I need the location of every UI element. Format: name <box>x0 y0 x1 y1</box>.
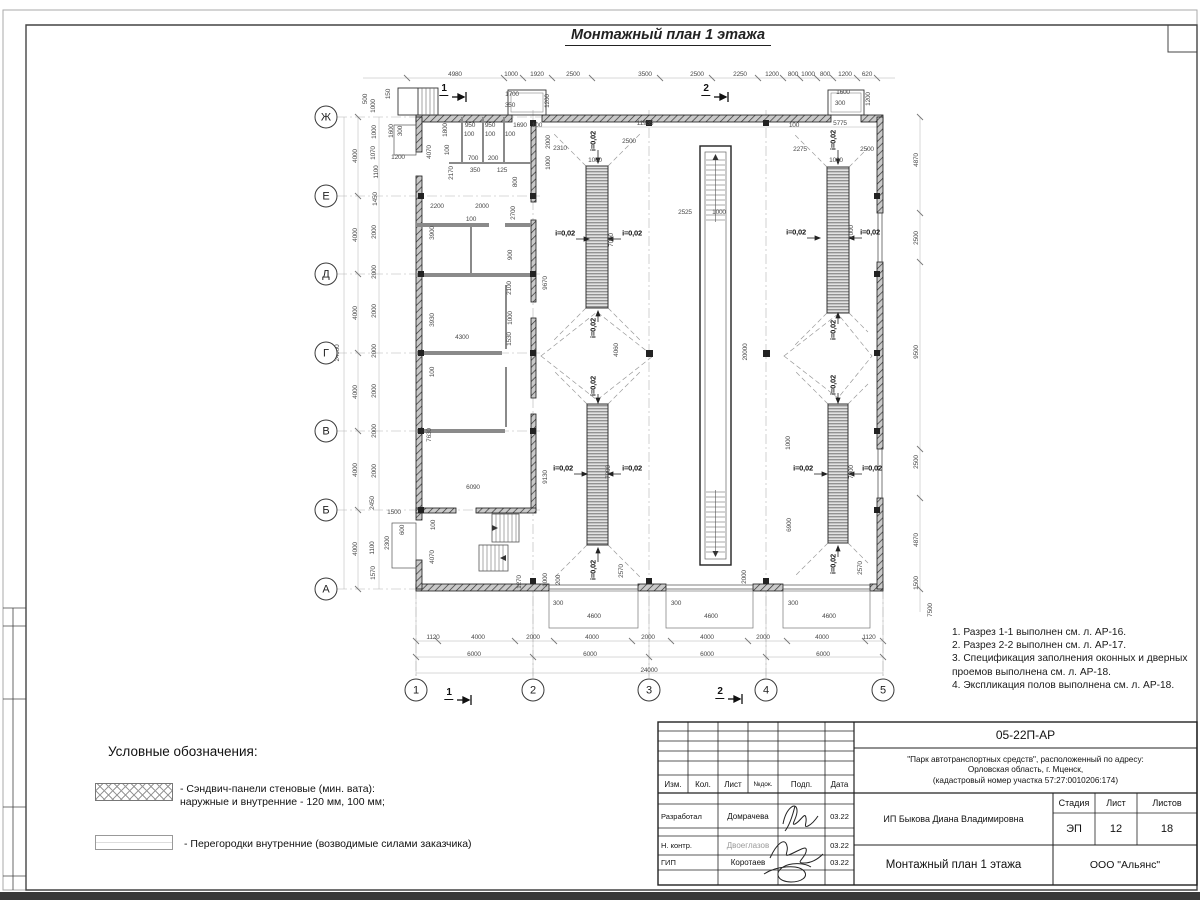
dim-label: 2000 <box>475 204 489 211</box>
dim-label: 1200 <box>765 72 779 79</box>
dim-label: 2000 <box>372 384 379 398</box>
stage-label: Стадия <box>1053 793 1095 813</box>
axis-bubble-row: Ж <box>315 106 338 129</box>
dim-label: 4000 <box>353 463 360 477</box>
slope-label: i=0,02 <box>862 464 882 472</box>
dim-label: 4000 <box>353 149 360 163</box>
note-item: 2. Разрез 2-2 выполнен см. л. АР-17. <box>952 639 1200 652</box>
slope-label: i=0,02 <box>860 228 880 236</box>
role-ncontrol: Н. контр. <box>661 836 717 855</box>
organization: ООО "Альянс" <box>1053 845 1197 885</box>
dim-label: 2450 <box>370 496 377 510</box>
dim-label: 7000 <box>849 465 856 479</box>
dim-label: 7000 <box>606 465 613 479</box>
dim-label: 4870 <box>914 533 921 547</box>
dim-label: 2500 <box>914 231 921 245</box>
dim-label: 7630 <box>427 428 434 442</box>
dim-label: 4000 <box>815 635 829 642</box>
dim-label: 2000 <box>372 304 379 318</box>
dim-label: 9130 <box>543 470 550 484</box>
dim-label: 6000 <box>467 652 481 659</box>
doc-number: 05-22П-АР <box>854 722 1197 748</box>
dim-label: 800 <box>788 72 798 79</box>
dim-label: 100 <box>505 132 515 139</box>
slope-label: i=0,02 <box>622 464 642 472</box>
dim-label: 1200 <box>866 92 873 106</box>
dim-label: 11935 <box>637 121 654 128</box>
slope-label: i=0,02 <box>589 560 597 580</box>
date-gip: 03.22 <box>825 855 854 870</box>
dim-label: 6000 <box>816 652 830 659</box>
note-item: 1. Разрез 1-1 выполнен см. л. АР-16. <box>952 626 1200 639</box>
dim-label: 4870 <box>914 153 921 167</box>
dim-label: 1200 <box>545 94 552 108</box>
slope-label: i=0,02 <box>829 320 837 340</box>
axis-bubble-row: Д <box>315 263 338 286</box>
slope-label: i=0,02 <box>829 554 837 574</box>
col-ndok: №док. <box>748 775 778 793</box>
dim-label: 2500 <box>860 147 874 154</box>
dim-label: 4000 <box>471 635 485 642</box>
dim-label: 1600 <box>836 90 850 97</box>
dim-label: 300 <box>788 601 798 608</box>
dim-label: 1270 <box>517 575 524 589</box>
legend-item-partition: - Перегородки внутренние (возводимые сил… <box>184 838 472 851</box>
dim-label: 700 <box>468 156 478 163</box>
dim-label: 4600 <box>704 614 718 621</box>
sheets-label: Листов <box>1137 793 1197 813</box>
dim-label: 1000 <box>829 158 843 165</box>
dim-label: 600 <box>400 525 407 535</box>
slope-label: i=0,02 <box>589 376 597 396</box>
dim-label: 7000 <box>609 233 616 247</box>
dim-label: 200 <box>556 575 563 585</box>
dim-label: 900 <box>508 250 515 260</box>
dim-label: 2000 <box>756 635 770 642</box>
dim-label: 100 <box>431 520 438 530</box>
legend-item-sandwich: - Сэндвич-панели стеновые (мин. вата): н… <box>180 783 385 809</box>
dim-label: 100 <box>789 123 799 130</box>
dim-label: 1000 <box>543 573 550 587</box>
sheet-title: Монтажный план 1 этажа <box>854 845 1053 885</box>
dim-label: 2570 <box>619 564 626 578</box>
dim-label: 100 <box>466 217 476 224</box>
dim-label: 1000 <box>504 72 518 79</box>
dim-label: 150 <box>386 89 393 99</box>
dim-label: 100 <box>430 367 437 377</box>
dim-label: 9670 <box>543 276 550 290</box>
dim-label: 2000 <box>526 635 540 642</box>
project-description: "Парк автотранспортных средств", располо… <box>858 748 1193 793</box>
axis-bubble-col: 4 <box>755 679 778 702</box>
dim-label: 620 <box>862 72 872 79</box>
dim-label: 950 <box>485 123 495 130</box>
notes-block: 1. Разрез 1-1 выполнен см. л. АР-16.2. Р… <box>952 626 1200 692</box>
dim-label: 1000 <box>801 72 815 79</box>
dim-label: 4600 <box>587 614 601 621</box>
dim-label: 2000 <box>641 635 655 642</box>
name-developer: Домрачева <box>718 804 778 828</box>
dim-label: 1530 <box>507 332 514 346</box>
col-list: Лист <box>718 775 748 793</box>
legend-title: Условные обозначения: <box>108 744 258 759</box>
dim-label: 100 <box>445 145 452 155</box>
axis-bubble-col: 2 <box>522 679 545 702</box>
dim-label: 7000 <box>849 225 856 239</box>
section-mark-label: 1 <box>444 688 453 700</box>
dim-label: 6900 <box>787 518 794 532</box>
dim-label: 2000 <box>546 135 553 149</box>
dim-label: 500 <box>363 94 370 104</box>
dim-label: 2100 <box>507 281 514 295</box>
dim-label: 200 <box>488 156 498 163</box>
dim-label: 4000 <box>585 635 599 642</box>
dim-label: 2700 <box>511 206 518 220</box>
dim-label: 1200 <box>391 155 405 162</box>
note-item: 4. Экспликация полов выполнена см. л. АР… <box>952 679 1200 692</box>
dim-label: 1000 <box>588 158 602 165</box>
slope-label: i=0,02 <box>553 464 573 472</box>
dim-label: 350 <box>505 103 515 110</box>
dim-label: 1920 <box>530 72 544 79</box>
axis-bubble-row: Б <box>315 499 338 522</box>
sheets-total: 18 <box>1137 813 1197 845</box>
slope-label: i=0,02 <box>555 229 575 237</box>
dim-label: 2200 <box>430 204 444 211</box>
dim-label: 2570 <box>858 561 865 575</box>
dim-label: 1600 <box>389 124 396 138</box>
col-izm: Изм. <box>658 775 688 793</box>
dim-label: 800 <box>820 72 830 79</box>
dim-label: 2000 <box>372 225 379 239</box>
dim-label: 100 <box>464 132 474 139</box>
slope-label: i=0,02 <box>589 318 597 338</box>
dim-label: 2310 <box>553 146 567 153</box>
slope-label: i=0,02 <box>793 464 813 472</box>
sandwich-panel-hatch-swatch <box>95 783 173 801</box>
dim-label: 5775 <box>833 121 847 128</box>
dim-label: 100 <box>485 132 495 139</box>
dim-label: 1500 <box>387 510 401 517</box>
slope-label: i=0,02 <box>829 130 837 150</box>
dim-label: 4070 <box>427 145 434 159</box>
dim-label: 2000 <box>372 265 379 279</box>
dim-label: 6090 <box>466 485 480 492</box>
dim-label: 24000 <box>640 668 657 675</box>
dim-label: 7500 <box>928 603 935 617</box>
sheet-label: Лист <box>1095 793 1137 813</box>
dim-label: 2000 <box>372 424 379 438</box>
dim-label: 1800 <box>443 123 450 137</box>
dim-label: 4300 <box>455 335 469 342</box>
date-ncontrol: 03.22 <box>825 836 854 855</box>
slope-label: i=0,02 <box>829 375 837 395</box>
dim-label: 6000 <box>700 652 714 659</box>
dim-label: 1070 <box>371 146 378 160</box>
dim-label: 9500 <box>914 345 921 359</box>
note-item: 3. Спецификация заполнения оконных и две… <box>952 652 1200 678</box>
dim-label: 1500 <box>914 576 921 590</box>
dim-label: 4000 <box>700 635 714 642</box>
slope-label: i=0,02 <box>589 131 597 151</box>
dim-label: 4000 <box>353 385 360 399</box>
dim-label: 1450 <box>373 192 380 206</box>
dim-label: 4000 <box>353 306 360 320</box>
dim-label: 3900 <box>430 226 437 240</box>
dim-label: 950 <box>465 123 475 130</box>
dim-label: 2500 <box>622 139 636 146</box>
axis-bubble-col: 3 <box>638 679 661 702</box>
axis-bubble-col: 5 <box>872 679 895 702</box>
dim-label: 2000 <box>742 570 749 584</box>
dim-label: 1000 <box>546 156 553 170</box>
dim-label: 2500 <box>690 72 704 79</box>
drawing-sheet: { "sheet": { "title": "Монтажный план 1 … <box>0 0 1200 900</box>
dim-label: 1000 <box>712 210 726 217</box>
role-gip: ГИП <box>661 855 717 870</box>
dim-label: 2525 <box>678 210 692 217</box>
section-mark-label: 2 <box>715 687 724 699</box>
dim-label: 300 <box>835 101 845 108</box>
dim-label: 125 <box>497 168 507 175</box>
col-data: Дата <box>825 775 854 793</box>
dim-label: 4600 <box>822 614 836 621</box>
axis-bubble-col: 1 <box>405 679 428 702</box>
role-developer: Разработал <box>661 804 717 828</box>
slope-label: i=0,02 <box>786 228 806 236</box>
dim-label: 2275 <box>793 147 807 154</box>
dim-label: 2500 <box>566 72 580 79</box>
dim-label: 350 <box>470 168 480 175</box>
dim-label: 1100 <box>374 165 381 178</box>
dim-label: 1120 <box>862 635 875 642</box>
dim-label: 2000 <box>372 344 379 358</box>
dim-label: 1000 <box>508 311 515 325</box>
dim-label: 1100 <box>370 541 377 554</box>
name-gip: Коротаев <box>718 855 778 870</box>
dim-label: 300 <box>671 601 681 608</box>
dim-label: 4000 <box>353 542 360 556</box>
dim-label: 1690 <box>513 123 527 130</box>
dim-label: 2500 <box>914 455 921 469</box>
dim-label: 2000 <box>372 464 379 478</box>
axis-bubble-row: А <box>315 578 338 601</box>
section-mark-label: 2 <box>701 84 710 96</box>
slope-label: i=0,02 <box>622 229 642 237</box>
axis-bubble-row: Е <box>315 185 338 208</box>
col-podp: Подп. <box>778 775 825 793</box>
dim-label: 2300 <box>385 536 392 550</box>
col-kol: Кол. <box>688 775 718 793</box>
dim-label: 3500 <box>638 72 652 79</box>
dim-label: 800 <box>513 177 520 187</box>
dim-label: 1120 <box>426 635 439 642</box>
dim-label: 4000 <box>353 228 360 242</box>
stage-value: ЭП <box>1053 813 1095 845</box>
partition-swatch <box>95 835 173 850</box>
dim-label: 1700 <box>505 92 519 99</box>
sheet-number: 12 <box>1095 813 1137 845</box>
dim-label: 300 <box>398 126 405 136</box>
dim-label: 1000 <box>786 436 793 450</box>
dim-label: 1570 <box>371 566 378 580</box>
dim-label: 4980 <box>448 72 462 79</box>
dim-label: 1200 <box>838 72 852 79</box>
dim-label: 4060 <box>614 343 621 357</box>
section-mark-label: 1 <box>439 84 448 96</box>
dim-label: 100 <box>532 123 542 130</box>
client: ИП Быкова Диана Владимировна <box>854 793 1053 845</box>
dim-label: 20000 <box>743 343 750 360</box>
name-ncontrol: Двоеглазов <box>718 836 778 855</box>
date-developer: 03.22 <box>825 804 854 828</box>
dim-label: 1000 <box>371 99 378 113</box>
axis-bubble-row: Г <box>315 342 338 365</box>
dim-label: 2170 <box>449 166 456 180</box>
dim-label: 4070 <box>430 550 437 564</box>
dim-label: 3930 <box>430 313 437 327</box>
dim-label: 6000 <box>583 652 597 659</box>
dim-label: 1000 <box>372 125 379 139</box>
dim-label: 300 <box>553 601 563 608</box>
dim-label: 2250 <box>733 72 747 79</box>
axis-bubble-row: В <box>315 420 338 443</box>
